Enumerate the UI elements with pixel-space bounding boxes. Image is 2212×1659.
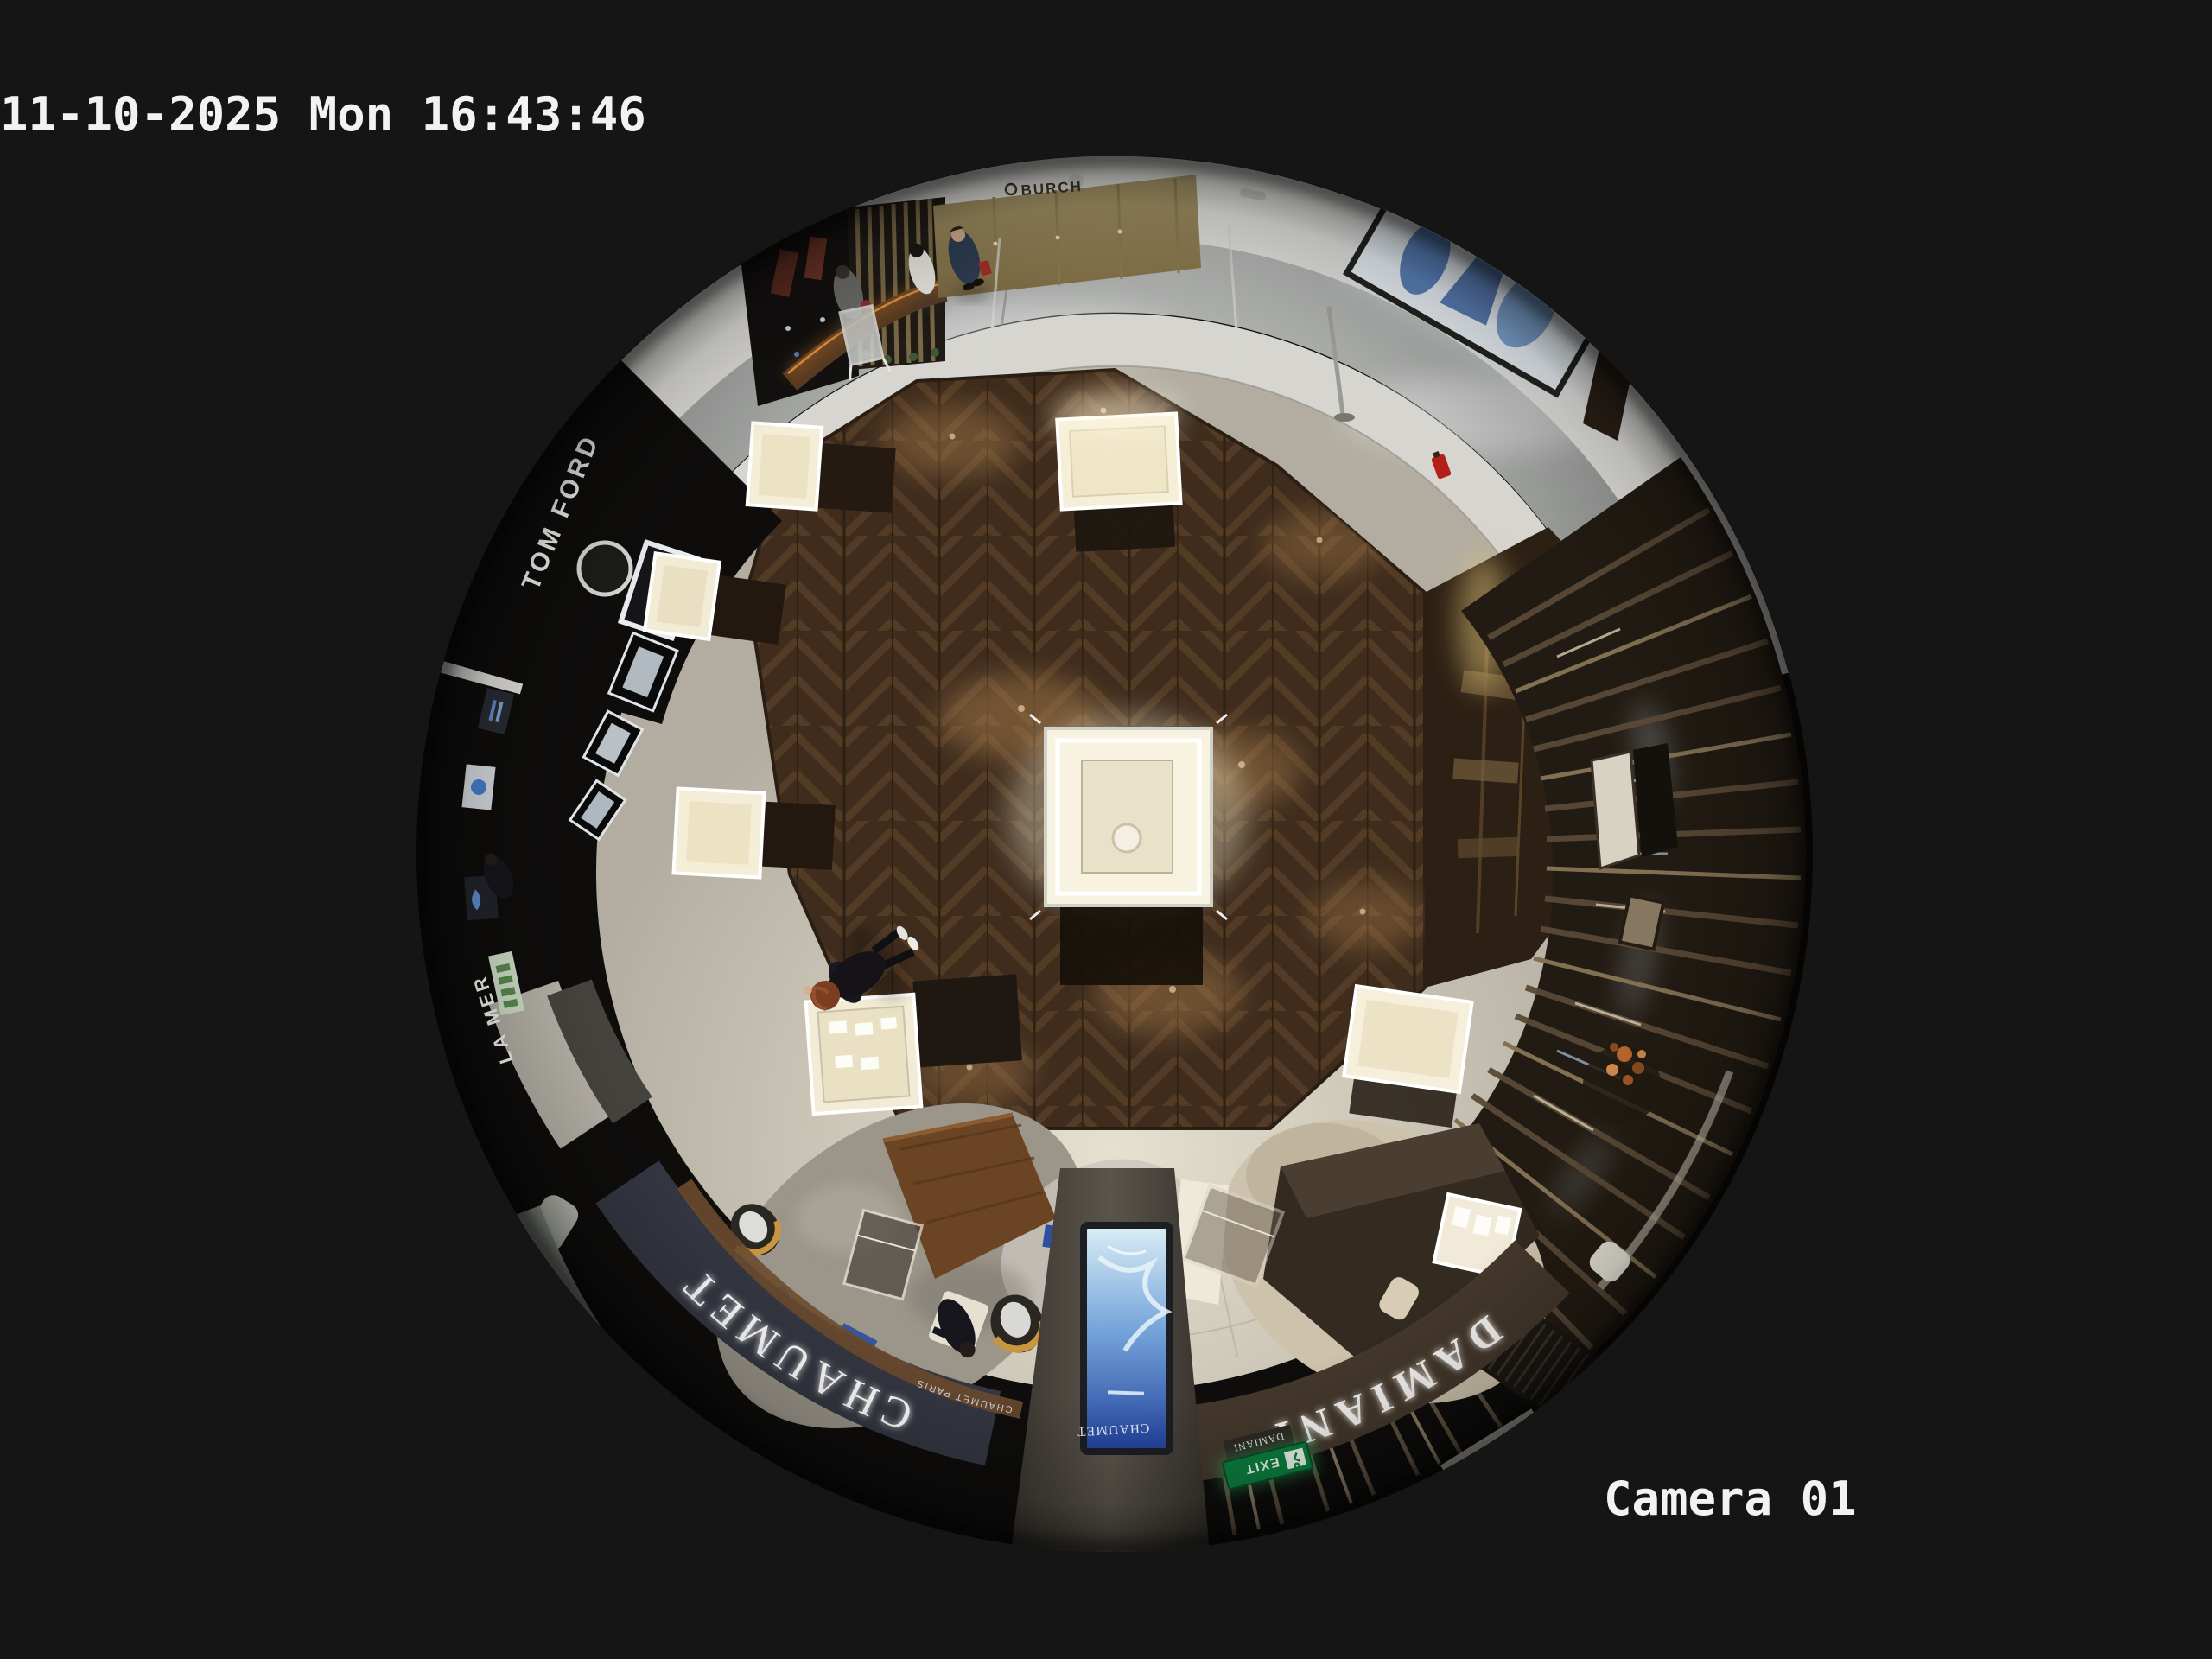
cctv-frame: 11-10-2025 Mon 16:43:46 Camera 01 bbox=[0, 0, 2212, 1659]
fisheye-camera-view[interactable]: BURCH bbox=[416, 156, 1813, 1552]
osd-timestamp: 11-10-2025 Mon 16:43:46 bbox=[0, 92, 646, 138]
fisheye-scene: BURCH bbox=[416, 156, 1813, 1552]
